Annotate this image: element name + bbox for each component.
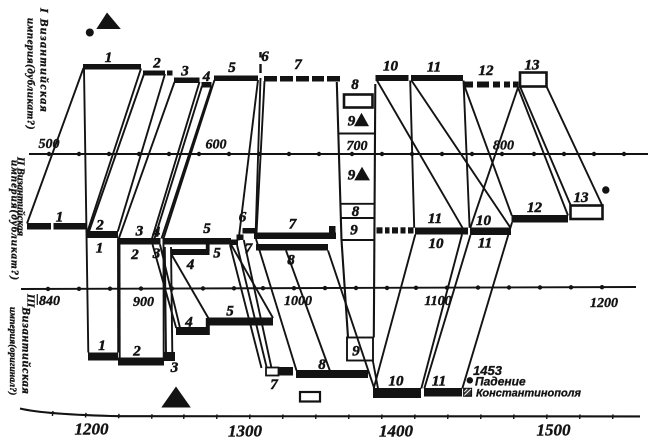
svg-text:9: 9	[350, 223, 358, 239]
svg-text:1: 1	[96, 241, 104, 257]
svg-text:2: 2	[130, 247, 139, 263]
svg-text:Византийская: Византийская	[20, 306, 34, 395]
svg-text:7: 7	[270, 377, 278, 393]
svg-text:9: 9	[348, 114, 356, 130]
svg-text:1: 1	[105, 50, 113, 66]
svg-text:9: 9	[352, 344, 360, 360]
svg-text:1400: 1400	[379, 422, 414, 441]
svg-text:11: 11	[427, 60, 441, 76]
svg-text:9: 9	[348, 168, 356, 184]
svg-text:8: 8	[351, 77, 359, 93]
svg-text:4: 4	[184, 315, 193, 331]
svg-text:600: 600	[206, 138, 227, 153]
svg-text:7: 7	[294, 57, 302, 73]
svg-text:4: 4	[202, 69, 211, 85]
svg-text:6: 6	[261, 49, 269, 65]
svg-text:3: 3	[170, 360, 179, 376]
svg-text:10: 10	[429, 236, 445, 252]
svg-text:8: 8	[318, 357, 326, 373]
svg-text:1300: 1300	[228, 422, 263, 441]
svg-text:4: 4	[152, 225, 161, 241]
svg-text:5: 5	[228, 60, 236, 76]
svg-text:11: 11	[432, 374, 446, 390]
svg-text:3: 3	[180, 64, 189, 80]
svg-text:I Византийская: I Византийская	[38, 7, 52, 113]
svg-text:Константинополя: Константинополя	[476, 388, 582, 400]
svg-text:3: 3	[152, 246, 161, 262]
svg-text:III: III	[25, 293, 37, 308]
svg-text:5: 5	[203, 221, 211, 237]
svg-text:2: 2	[95, 218, 104, 234]
svg-text:10: 10	[389, 374, 405, 390]
svg-text:7: 7	[245, 241, 253, 257]
svg-text:7: 7	[289, 217, 297, 233]
svg-text:империя(дубликат?): империя(дубликат?)	[9, 160, 21, 281]
svg-text:2: 2	[152, 56, 161, 72]
svg-text:5: 5	[226, 304, 234, 320]
svg-text:10: 10	[383, 59, 399, 75]
svg-text:6: 6	[239, 210, 247, 226]
svg-text:империя(оригинал?): империя(оригинал?)	[7, 307, 18, 395]
svg-text:1100: 1100	[424, 294, 451, 309]
svg-text:700: 700	[347, 139, 368, 154]
svg-text:11: 11	[478, 236, 492, 252]
svg-text:8: 8	[287, 253, 295, 269]
svg-text:12: 12	[479, 63, 495, 79]
svg-text:8: 8	[352, 204, 360, 220]
svg-text:1200: 1200	[590, 296, 618, 311]
svg-text:900: 900	[133, 295, 154, 310]
svg-text:империя(дубликат?): империя(дубликат?)	[25, 18, 37, 130]
svg-text:1200: 1200	[75, 420, 110, 439]
svg-text:5: 5	[213, 246, 221, 262]
svg-text:1500: 1500	[537, 421, 572, 440]
svg-text:2: 2	[132, 344, 141, 360]
svg-text:1000: 1000	[284, 294, 312, 309]
svg-text:11: 11	[428, 211, 442, 227]
svg-text:Падение: Падение	[475, 375, 526, 389]
svg-text:13: 13	[574, 190, 590, 206]
svg-text:1: 1	[56, 210, 64, 226]
svg-text:13: 13	[525, 58, 541, 74]
svg-text:3: 3	[135, 224, 144, 240]
svg-text:1: 1	[98, 338, 106, 354]
svg-text:10: 10	[476, 213, 492, 229]
svg-text:4: 4	[186, 257, 195, 273]
svg-text:840: 840	[39, 294, 60, 309]
svg-text:12: 12	[527, 200, 543, 216]
